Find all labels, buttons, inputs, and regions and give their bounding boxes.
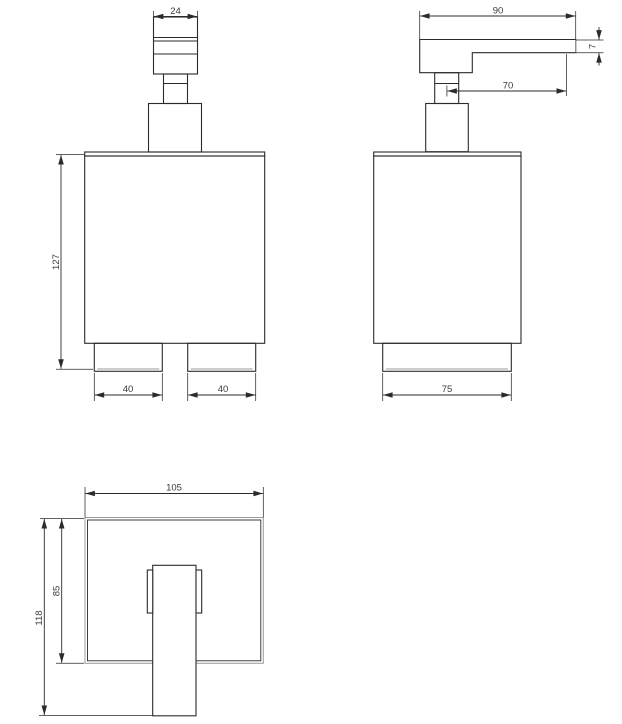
dim-side-spout-length: 90 bbox=[420, 6, 576, 40]
technical-drawing-soap-dispenser: 24 127 40 40 bbox=[0, 0, 622, 724]
dim-front-height: 127 bbox=[51, 155, 93, 370]
dim-label-127: 127 bbox=[51, 254, 62, 270]
front-foot-left bbox=[94, 343, 162, 371]
dim-label-105: 105 bbox=[166, 483, 182, 494]
dim-bottom-body-depth: 85 bbox=[40, 519, 84, 664]
side-spout-lever bbox=[420, 40, 576, 73]
front-pump-neck bbox=[164, 74, 188, 104]
dim-side-spout-reach: 70 bbox=[447, 54, 567, 97]
dim-bottom-width: 105 bbox=[85, 483, 263, 518]
dim-side-spout-tip-height: 7 bbox=[576, 27, 604, 66]
dim-side-base-depth: 75 bbox=[383, 373, 512, 401]
front-view: 24 127 40 40 bbox=[51, 6, 265, 401]
side-view: 90 7 70 75 bbox=[374, 6, 604, 402]
front-pump-collar bbox=[149, 104, 202, 153]
dim-front-foot-right: 40 bbox=[188, 373, 256, 401]
dim-front-head-width: 24 bbox=[154, 6, 198, 17]
side-foot bbox=[383, 343, 512, 371]
side-pump-collar bbox=[426, 104, 469, 152]
bottom-collar-tab-left bbox=[147, 570, 152, 613]
front-pump-head bbox=[154, 17, 198, 74]
front-body bbox=[85, 156, 265, 343]
side-body-rim bbox=[374, 152, 521, 156]
dim-front-foot-left: 40 bbox=[94, 373, 162, 401]
bottom-collar-tab-right bbox=[196, 570, 202, 613]
dim-label-75: 75 bbox=[442, 384, 453, 395]
dim-label-40-right: 40 bbox=[218, 384, 229, 395]
side-body bbox=[374, 156, 521, 343]
dim-label-24: 24 bbox=[170, 6, 181, 17]
bottom-spout bbox=[153, 565, 196, 716]
dim-label-7: 7 bbox=[588, 44, 599, 49]
dim-label-118: 118 bbox=[34, 610, 45, 625]
drawing-canvas: 24 127 40 40 bbox=[0, 0, 622, 724]
dim-bottom-overall-depth: 118 bbox=[34, 519, 153, 716]
front-body-rim bbox=[85, 152, 265, 156]
bottom-view: 105 85 118 bbox=[34, 483, 263, 716]
dim-label-70: 70 bbox=[503, 81, 514, 92]
front-foot-right bbox=[188, 343, 256, 371]
dim-label-40-left: 40 bbox=[123, 384, 134, 395]
dim-label-85: 85 bbox=[52, 586, 63, 597]
dim-label-90: 90 bbox=[493, 6, 504, 17]
